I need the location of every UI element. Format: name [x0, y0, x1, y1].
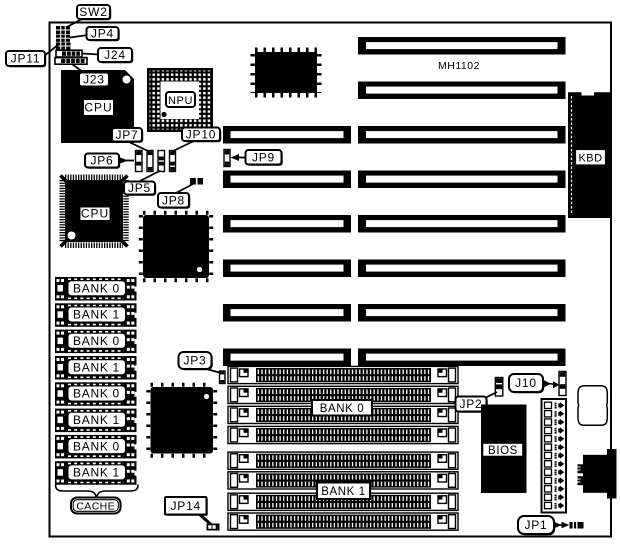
svg-text:BANK 0: BANK 0: [73, 281, 120, 295]
svg-text:BANK 0: BANK 0: [320, 403, 365, 415]
svg-text:BANK 0: BANK 0: [73, 334, 120, 348]
svg-text:MH1102: MH1102: [438, 60, 480, 72]
svg-text:JP14: JP14: [170, 499, 201, 513]
svg-text:JP4: JP4: [91, 27, 114, 41]
svg-text:SW2: SW2: [79, 5, 107, 19]
svg-text:BIOS: BIOS: [488, 445, 518, 457]
svg-text:CACHE: CACHE: [76, 501, 115, 513]
svg-text:J23: J23: [83, 73, 105, 87]
svg-text:BANK 1: BANK 1: [321, 486, 366, 498]
svg-text:NPU: NPU: [168, 95, 193, 107]
svg-text:JP6: JP6: [90, 154, 113, 168]
svg-text:KBD: KBD: [578, 153, 602, 165]
svg-text:JP2: JP2: [459, 397, 482, 411]
svg-text:BANK 1: BANK 1: [73, 360, 120, 374]
svg-text:JP1: JP1: [524, 518, 547, 532]
svg-text:BANK 1: BANK 1: [73, 466, 120, 480]
svg-text:BANK 0: BANK 0: [73, 439, 120, 453]
svg-text:J24: J24: [104, 48, 126, 62]
svg-text:J10: J10: [515, 376, 537, 390]
svg-text:JP11: JP11: [11, 52, 41, 66]
svg-text:CPU: CPU: [81, 207, 109, 221]
svg-text:BANK 1: BANK 1: [73, 308, 120, 322]
svg-text:JP9: JP9: [252, 150, 275, 164]
svg-text:BANK 1: BANK 1: [73, 413, 120, 427]
svg-text:BANK 0: BANK 0: [73, 387, 120, 401]
svg-text:JP10: JP10: [186, 127, 217, 141]
svg-text:CPU: CPU: [84, 101, 112, 115]
svg-text:JP8: JP8: [162, 193, 185, 207]
svg-text:JP3: JP3: [183, 354, 206, 368]
svg-text:JP5: JP5: [128, 181, 151, 195]
svg-text:JP7: JP7: [115, 128, 138, 142]
